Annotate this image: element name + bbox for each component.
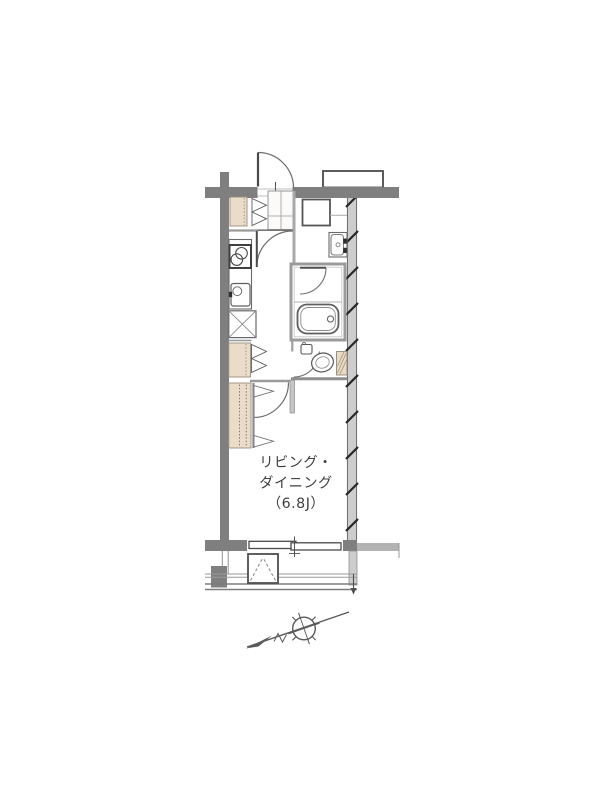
bathtub bbox=[298, 305, 339, 334]
upper-closet-door-symbol bbox=[252, 345, 267, 373]
window-sash-right bbox=[291, 543, 341, 550]
washbasin bbox=[329, 233, 347, 258]
equipment-space bbox=[248, 554, 278, 583]
kitchen-sink bbox=[229, 284, 250, 307]
toilet-tank bbox=[301, 345, 312, 355]
sink-faucet bbox=[229, 292, 232, 297]
north-arrow-icon bbox=[246, 612, 349, 649]
living-room-label-line1: リビング・ bbox=[259, 455, 332, 471]
stove bbox=[230, 245, 252, 268]
window-sash-left bbox=[249, 541, 296, 548]
closets bbox=[229, 343, 274, 448]
genkan-tiles bbox=[268, 191, 294, 230]
washroom bbox=[303, 200, 348, 258]
toilet-room bbox=[291, 340, 347, 379]
living-door-wall-stub bbox=[290, 380, 295, 413]
bathroom bbox=[291, 264, 345, 340]
refrigerator-space bbox=[229, 311, 256, 338]
floorplan-drawing: リビング・ ダイニング （6.8J） bbox=[0, 0, 600, 800]
top-wall bbox=[205, 187, 399, 198]
washing-machine-space bbox=[303, 200, 331, 226]
balcony bbox=[205, 551, 357, 595]
meter-box bbox=[323, 171, 383, 188]
upper-closet bbox=[229, 343, 267, 377]
bottom-wall-extension bbox=[357, 543, 399, 551]
toilet bbox=[301, 342, 336, 374]
kitchen bbox=[229, 240, 256, 338]
living-room-label-line3: （6.8J） bbox=[267, 496, 325, 512]
right-wall bbox=[346, 187, 358, 551]
shoe-cabinet-door-symbol bbox=[252, 199, 267, 226]
hall-door-arc bbox=[257, 231, 293, 267]
living-room: リビング・ ダイニング （6.8J） bbox=[259, 455, 332, 512]
floorplan-page: リビング・ ダイニング （6.8J） bbox=[0, 0, 600, 800]
washbasin-faucet bbox=[343, 239, 347, 244]
washbasin-faucet bbox=[343, 248, 347, 253]
living-room-label-line2: ダイニング bbox=[259, 476, 332, 492]
balcony-handrail bbox=[205, 574, 357, 590]
left-wall bbox=[220, 172, 229, 540]
pipe-space-box bbox=[337, 352, 348, 376]
toilet-bowl bbox=[309, 351, 335, 375]
